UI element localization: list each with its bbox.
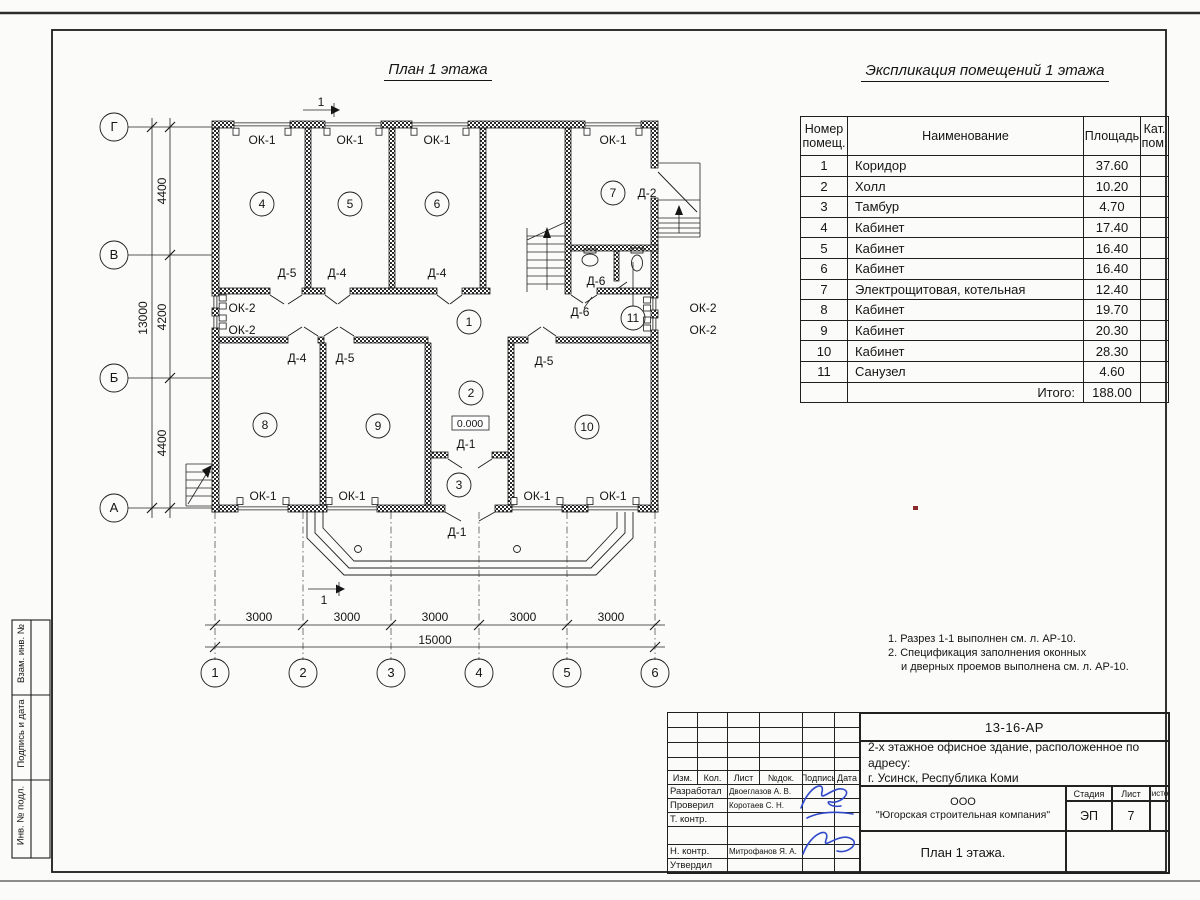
- table-cell: Санузел: [848, 361, 1084, 382]
- axis-circle-label: 3: [387, 665, 394, 680]
- signature: [803, 832, 854, 854]
- table-cell: 17.40: [1084, 217, 1141, 238]
- porch-column: [514, 546, 521, 553]
- title-block-empty-cell: [1066, 831, 1169, 873]
- col-header-number: Номер помещ.: [801, 117, 848, 156]
- company: ООО "Югорская строительная компания": [860, 786, 1066, 831]
- window-jamb: [511, 498, 517, 505]
- room-table-title: Экспликация помещений 1 этажа: [830, 62, 1140, 79]
- stage-value: ЭП: [1066, 801, 1112, 831]
- title-block-cell: [698, 713, 728, 728]
- axis-circle-label: 6: [651, 665, 658, 680]
- window-jamb: [219, 315, 226, 321]
- table-cell: 11: [801, 361, 848, 382]
- role: Разработал: [668, 785, 728, 799]
- title-block-cell: [760, 743, 803, 758]
- table-cell: 5: [801, 238, 848, 259]
- wall: [389, 128, 395, 288]
- pname: [728, 813, 803, 827]
- room-circle-label: 7: [610, 186, 617, 200]
- plan-label: 3000: [246, 610, 273, 624]
- window-jamb: [636, 128, 642, 135]
- table-cell: [1141, 279, 1169, 300]
- window-jamb: [283, 498, 289, 505]
- plan-label: ОК-1: [600, 489, 627, 503]
- washbasin-icon: [582, 254, 598, 266]
- title-block-cell: [760, 728, 803, 743]
- title-block-cell: [698, 743, 728, 758]
- wall: [431, 452, 448, 458]
- dimension-ticks: [147, 122, 660, 652]
- plan-label: 4200: [155, 303, 169, 330]
- wall: [219, 337, 288, 343]
- window-jamb: [587, 498, 593, 505]
- window-jamb: [326, 498, 332, 505]
- wall: [468, 121, 585, 128]
- plan-label: ОК-2: [229, 301, 256, 315]
- project-line: г. Усинск, Республика Коми: [868, 771, 1019, 786]
- plan-label: ОК-2: [229, 323, 256, 337]
- signatures: [795, 778, 879, 870]
- title-block-cell: [728, 758, 760, 771]
- wall: [462, 288, 490, 294]
- room-circle-label: 3: [456, 478, 463, 492]
- table-cell: 6: [801, 258, 848, 279]
- table-total-row: Итого: 188.00: [801, 382, 1169, 403]
- table-row: 7Электрощитовая, котельная12.40: [801, 279, 1169, 300]
- stage-header: Стадия: [1066, 786, 1112, 801]
- tb-col-header: Лист: [728, 771, 760, 785]
- title-block-cell: [698, 728, 728, 743]
- table-cell: 37.60: [1084, 156, 1141, 177]
- wall: [508, 337, 528, 343]
- title-block-cell: [835, 713, 860, 728]
- wall: [320, 343, 326, 505]
- wall: [651, 330, 658, 512]
- arrowhead: [336, 585, 345, 594]
- axis-circle-label: 1: [211, 665, 218, 680]
- table-cell: 4.60: [1084, 361, 1141, 382]
- plan-label: Д-1: [457, 437, 476, 451]
- table-cell: 2: [801, 176, 848, 197]
- wall: [480, 128, 486, 288]
- table-cell: Кабинет: [848, 217, 1084, 238]
- title-block-cell: [803, 743, 835, 758]
- table-cell: [1141, 217, 1169, 238]
- title-block-cell: [803, 758, 835, 771]
- title-block-cell: [728, 728, 760, 743]
- doc-number: 13-16-АР: [860, 713, 1169, 741]
- table-cell: [1141, 156, 1169, 177]
- project-line: 2-х этажное офисное здание, расположенно…: [868, 741, 1168, 771]
- room-circle-label: 8: [262, 418, 269, 432]
- wall: [212, 308, 219, 316]
- plan-label: 3000: [598, 610, 625, 624]
- wall: [562, 505, 588, 512]
- plan-label: Д-6: [571, 305, 590, 319]
- plan-label: Д-4: [428, 266, 447, 280]
- sheets-value-cell: [1150, 801, 1169, 831]
- signature: [807, 812, 853, 818]
- wall: [212, 328, 219, 512]
- wall: [651, 128, 658, 168]
- room-table: Номер помещ. Наименование Площадь Кат. п…: [800, 116, 1169, 403]
- drawing-sheet: ОК-1ОК-1ОК-1ОК-1Д-2Д-5Д-4Д-4Д-6Д-6ОК-2ОК…: [0, 0, 1200, 900]
- plan-label: 3000: [334, 610, 361, 624]
- title-block-cell: [698, 758, 728, 771]
- table-row: 11Санузел4.60: [801, 361, 1169, 382]
- table-cell: [1141, 258, 1169, 279]
- plan-label: 13000: [136, 301, 150, 335]
- plan-label: 3000: [422, 610, 449, 624]
- title-block-cell: [728, 713, 760, 728]
- sanitary-fixtures: [582, 248, 643, 271]
- table-cell: 3: [801, 197, 848, 218]
- table-cell: [1141, 320, 1169, 341]
- title-block-cell: [668, 728, 698, 743]
- wall: [651, 310, 658, 318]
- table-cell: Коридор: [848, 156, 1084, 177]
- scan-speck: [913, 506, 918, 510]
- wall: [212, 121, 234, 128]
- sidebar-label-vzam: Взам. инв. №: [16, 616, 27, 691]
- plan-label: ОК-1: [249, 133, 276, 147]
- axis-circle-label: 2: [299, 665, 306, 680]
- plan-label: ОК-1: [424, 133, 451, 147]
- wall: [219, 288, 270, 294]
- wall: [495, 505, 512, 512]
- plan-label: 15000: [418, 633, 452, 647]
- wall: [381, 121, 412, 128]
- plan-label: ОК-1: [600, 133, 627, 147]
- role: [668, 827, 728, 845]
- window-jamb: [584, 128, 590, 135]
- pname: Двоеглазов А. В.: [728, 785, 803, 799]
- pname: [728, 859, 803, 873]
- table-row: 5Кабинет16.40: [801, 238, 1169, 259]
- arrowhead: [331, 106, 340, 115]
- tb-col-header: Изм.: [668, 771, 698, 785]
- table-cell: Кабинет: [848, 300, 1084, 321]
- wall: [288, 505, 327, 512]
- note-line: 1. Разрез 1-1 выполнен см. л. АР-10.: [888, 633, 1129, 647]
- col-header-area: Площадь: [1084, 117, 1141, 156]
- note-line: и дверных проемов выполнена см. л. АР-10…: [901, 661, 1129, 675]
- plan-title: План 1 этажа: [348, 61, 528, 78]
- axis-circle-label: 4: [475, 665, 482, 680]
- sheet-number: 7: [1112, 801, 1150, 831]
- table-row: 6Кабинет16.40: [801, 258, 1169, 279]
- window-jamb: [644, 297, 651, 303]
- wall: [492, 452, 508, 458]
- wall: [212, 128, 219, 296]
- table-row: 3Тамбур4.70: [801, 197, 1169, 218]
- wall: [641, 121, 658, 128]
- table-cell: [1141, 300, 1169, 321]
- role: Утвердил: [668, 859, 728, 873]
- title-block-cell: [668, 713, 698, 728]
- window-jamb: [557, 498, 563, 505]
- plan-label: 4400: [155, 177, 169, 204]
- plan-label: Д-5: [278, 266, 297, 280]
- table-cell: 10: [801, 341, 848, 362]
- axis-circle-label: Б: [110, 370, 119, 385]
- plan-label: 1: [321, 593, 328, 607]
- room-circle-label: 9: [375, 419, 382, 433]
- room-circle-label: 5: [347, 197, 354, 211]
- porch-column: [355, 546, 362, 553]
- plan-label: ОК-2: [690, 301, 717, 315]
- axis-circle-label: В: [110, 247, 119, 262]
- table-cell: 19.70: [1084, 300, 1141, 321]
- title-block-cell: [835, 743, 860, 758]
- plan-label: ОК-2: [690, 323, 717, 337]
- project-description: 2-х этажное офисное здание, расположенно…: [860, 741, 1169, 786]
- table-cell: Кабинет: [848, 238, 1084, 259]
- table-cell: Холл: [848, 176, 1084, 197]
- wall: [425, 343, 431, 505]
- drawing-name: План 1 этажа.: [860, 831, 1066, 873]
- total-label: Итого:: [848, 382, 1084, 403]
- entrance-porch: [307, 512, 633, 575]
- table-cell: Тамбур: [848, 197, 1084, 218]
- room-table-title-text: Экспликация помещений 1 этажа: [861, 62, 1108, 82]
- table-cell: Кабинет: [848, 320, 1084, 341]
- plan-label: Д-5: [336, 351, 355, 365]
- plan-label: 0.000: [457, 418, 483, 430]
- axis-circle-label: 5: [563, 665, 570, 680]
- title-block-cell: [760, 758, 803, 771]
- table-cell: [1141, 361, 1169, 382]
- title-block-cell: [835, 758, 860, 771]
- table-cell: [1141, 238, 1169, 259]
- plan-label: 3000: [510, 610, 537, 624]
- axis-circle-label: Г: [110, 119, 117, 134]
- wall: [614, 251, 619, 281]
- table-row: 1Коридор37.60: [801, 156, 1169, 177]
- title-block-cell: [803, 728, 835, 743]
- total-empty-cell: [801, 382, 848, 403]
- table-cell: 10.20: [1084, 176, 1141, 197]
- wall: [305, 128, 311, 288]
- table-cell: 16.40: [1084, 238, 1141, 259]
- table-cell: Электрощитовая, котельная: [848, 279, 1084, 300]
- table-row: 4Кабинет17.40: [801, 217, 1169, 238]
- wall: [597, 288, 651, 294]
- title-block-cell: [835, 728, 860, 743]
- table-cell: 4.70: [1084, 197, 1141, 218]
- table-cell: 7: [801, 279, 848, 300]
- plan-label: ОК-1: [524, 489, 551, 503]
- signature: [801, 786, 847, 808]
- sidebar-label-inv: Инв. № подл.: [16, 777, 27, 855]
- arrowhead: [202, 465, 212, 478]
- plan-label: ОК-1: [250, 489, 277, 503]
- room-circle-label: 11: [627, 311, 640, 325]
- room-circle-label: 6: [434, 197, 441, 211]
- sheet-header: Лист: [1112, 786, 1150, 801]
- room-circle-label: 1: [466, 315, 473, 329]
- total-value: 188.00: [1084, 382, 1141, 403]
- wall: [318, 337, 324, 343]
- table-cell: [1141, 197, 1169, 218]
- title-block-cell: [728, 743, 760, 758]
- notes: 1. Разрез 1-1 выполнен см. л. АР-10. 2. …: [888, 633, 1129, 674]
- window-jamb: [219, 295, 226, 301]
- wall: [556, 337, 651, 343]
- role: Т. контр.: [668, 813, 728, 827]
- wall: [508, 343, 514, 505]
- plan-label: 1: [318, 95, 325, 109]
- table-cell: [1141, 341, 1169, 362]
- table-cell: Кабинет: [848, 341, 1084, 362]
- role: Проверил: [668, 799, 728, 813]
- window-jamb: [233, 128, 239, 135]
- note-line: 2. Спецификация заполнения оконных: [888, 647, 1129, 661]
- plan-label: 4400: [155, 429, 169, 456]
- plan-title-text: План 1 этажа: [384, 61, 491, 81]
- title-block-cell: [668, 743, 698, 758]
- window-jamb: [219, 323, 226, 329]
- window-jamb: [285, 128, 291, 135]
- wall: [302, 288, 325, 294]
- window-jamb: [411, 128, 417, 135]
- plan-label: Д-6: [587, 274, 606, 288]
- table-row: 10Кабинет28.30: [801, 341, 1169, 362]
- window-jamb: [633, 498, 639, 505]
- window-jamb: [237, 498, 243, 505]
- room-circle-label: 4: [259, 197, 266, 211]
- room-circle-label: 10: [580, 420, 594, 434]
- wall: [377, 505, 445, 512]
- role: Н. контр.: [668, 845, 728, 859]
- arrowheads: [202, 106, 683, 594]
- plan-label: Д-4: [288, 351, 307, 365]
- pname: [728, 827, 803, 845]
- total-category-cell: [1141, 382, 1169, 403]
- sidebar-label-podpis: Подпись и дата: [16, 691, 27, 776]
- title-block: Изм.Кол.Лист№док.ПодписьДатаРазработалДв…: [667, 712, 1170, 874]
- table-cell: 9: [801, 320, 848, 341]
- table-cell: 12.40: [1084, 279, 1141, 300]
- wall: [350, 288, 437, 294]
- table-cell: 8: [801, 300, 848, 321]
- plan-label: ОК-1: [337, 133, 364, 147]
- window-jamb: [324, 128, 330, 135]
- plan-label: ОК-1: [339, 489, 366, 503]
- table-header-row: Номер помещ. Наименование Площадь Кат. п…: [801, 117, 1169, 156]
- plan-label: Д-5: [535, 354, 554, 368]
- plan-label: Д-4: [328, 266, 347, 280]
- window-jamb: [644, 305, 651, 311]
- table-row: 8Кабинет19.70: [801, 300, 1169, 321]
- table-cell: 1: [801, 156, 848, 177]
- table-cell: 20.30: [1084, 320, 1141, 341]
- plan-label: Д-1: [448, 525, 467, 539]
- window-jamb: [372, 498, 378, 505]
- table-row: 2Холл10.20: [801, 176, 1169, 197]
- window-jamb: [644, 325, 651, 331]
- arrowhead: [675, 205, 683, 215]
- table-cell: 4: [801, 217, 848, 238]
- sheets-header: Листов: [1150, 786, 1169, 801]
- title-block-cell: [803, 713, 835, 728]
- table-cell: 28.30: [1084, 341, 1141, 362]
- plan-circles: 4567123891011ГВБА123456: [100, 113, 669, 687]
- title-block-cell: [668, 758, 698, 771]
- window-jamb: [219, 303, 226, 309]
- table-cell: Кабинет: [848, 258, 1084, 279]
- arrowhead: [543, 227, 551, 238]
- walls: [212, 121, 658, 512]
- room-circle-label: 2: [468, 386, 475, 400]
- window-jamb: [463, 128, 469, 135]
- company-line: "Югорская строительная компания": [876, 809, 1050, 823]
- wall: [565, 128, 571, 294]
- col-header-category: Кат. пом.: [1141, 117, 1169, 156]
- tb-col-header: Кол.: [698, 771, 728, 785]
- company-line: ООО: [950, 795, 976, 809]
- wall: [290, 121, 325, 128]
- plan-label: Д-2: [638, 186, 657, 200]
- table-row: 9Кабинет20.30: [801, 320, 1169, 341]
- table-cell: [1141, 176, 1169, 197]
- wall: [354, 337, 428, 343]
- axis-circle-label: А: [110, 500, 119, 515]
- title-block-cell: [760, 713, 803, 728]
- col-header-name: Наименование: [848, 117, 1084, 156]
- pname: Коротаев С. Н.: [728, 799, 803, 813]
- pname: Митрофанов Я. А.: [728, 845, 803, 859]
- window-jamb: [376, 128, 382, 135]
- table-cell: 16.40: [1084, 258, 1141, 279]
